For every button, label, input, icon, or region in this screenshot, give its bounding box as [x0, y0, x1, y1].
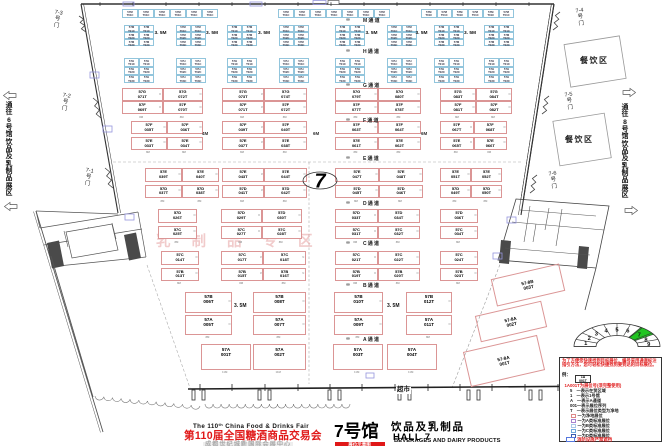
svg-text:7: 7 [638, 332, 641, 338]
svg-text:2: 2 [588, 336, 591, 342]
svg-text:7: 7 [314, 171, 326, 193]
